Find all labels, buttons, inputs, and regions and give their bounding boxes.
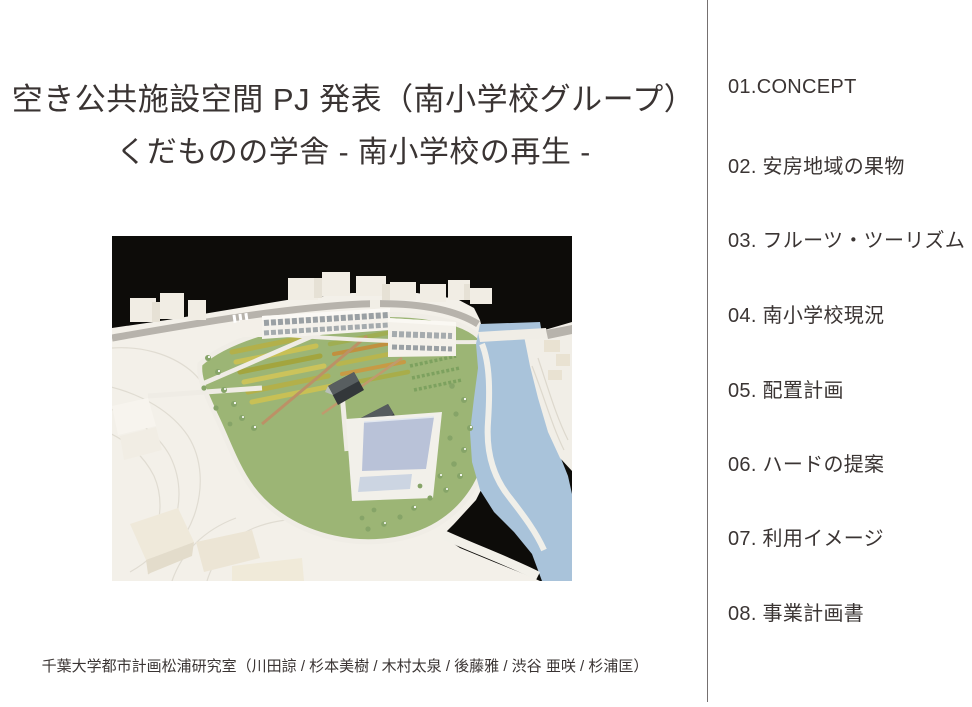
agenda-item-05: 05. 配置計画 xyxy=(728,374,844,403)
slide-title: 空き公共施設空間 PJ 発表（南小学校グループ） xyxy=(0,74,707,119)
vertical-divider xyxy=(707,0,708,702)
agenda-item-06: 06. ハードの提案 xyxy=(728,448,884,477)
site-model-photo-svg xyxy=(112,236,572,581)
credit-line: 千葉大学都市計画松浦研究室（川田諒 / 杉本美樹 / 木村太泉 / 後藤雅 / … xyxy=(0,655,690,676)
agenda-item-02: 02. 安房地域の果物 xyxy=(728,150,905,179)
presentation-slide: 空き公共施設空間 PJ 発表（南小学校グループ） くだものの学舎 - 南小学校の… xyxy=(0,0,972,707)
agenda-list: 01.CONCEPT 02. 安房地域の果物 03. フルーツ・ツーリズム 04… xyxy=(728,0,972,707)
agenda-item-04: 04. 南小学校現況 xyxy=(728,299,884,328)
agenda-item-07: 07. 利用イメージ xyxy=(728,522,884,551)
agenda-item-08: 08. 事業計画書 xyxy=(728,597,864,626)
site-model-photo xyxy=(112,236,572,581)
agenda-item-03: 03. フルーツ・ツーリズム xyxy=(728,224,965,253)
pool-complex xyxy=(346,412,442,501)
agenda-item-01: 01.CONCEPT xyxy=(728,76,857,99)
slide-subtitle: くだものの学舎 - 南小学校の再生 - xyxy=(0,127,707,171)
